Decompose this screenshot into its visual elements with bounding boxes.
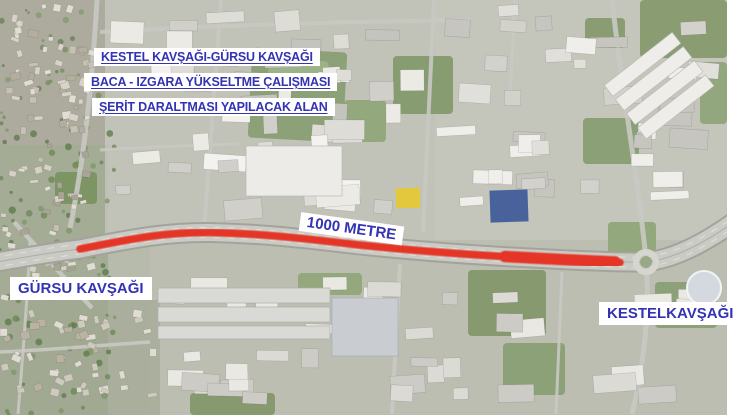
kestel-junction-label: KESTELKAVŞAĞI <box>599 302 740 325</box>
project-title-line-2: BACA - IZGARA YÜKSELTME ÇALIŞMASI <box>84 73 337 91</box>
project-title-line-3: ŞERİT DARALTMASI YAPILACAK ALAN <box>92 98 335 116</box>
road-work-map-screenshot: { "map": { "title_lines": [ "KESTEL KAVŞ… <box>0 0 740 420</box>
gursu-junction-label: GÜRSU KAVŞAĞI <box>10 277 152 300</box>
project-title-line-1: KESTEL KAVŞAĞI-GÜRSU KAVŞAĞI <box>94 48 320 66</box>
project-title-box: KESTEL KAVŞAĞI-GÜRSU KAVŞAĞI BACA - IZGA… <box>84 48 337 123</box>
